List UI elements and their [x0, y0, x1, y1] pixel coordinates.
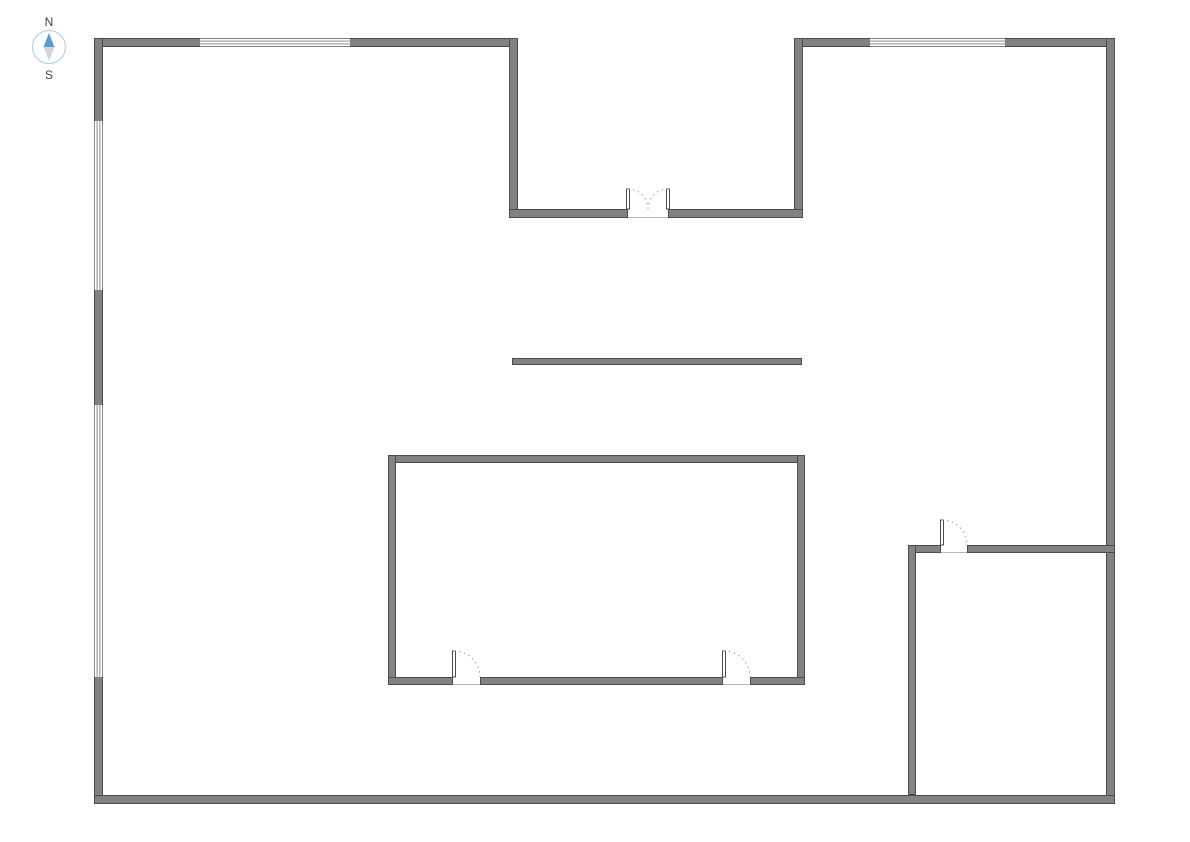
door-leaf [627, 189, 630, 209]
window-glass [870, 38, 1005, 47]
window-glass [94, 121, 103, 290]
wall-divider [513, 359, 802, 365]
entry-double-door-right-leaf [648, 189, 670, 209]
wall-outer-bottom [95, 796, 1115, 804]
door-swing-arc [628, 189, 648, 209]
wall-room-top [389, 456, 805, 463]
floor-plan-drawing: N S [0, 0, 1190, 842]
wall-br-room-left [909, 546, 916, 795]
door-leaf [667, 189, 670, 209]
door-leaf [453, 651, 456, 677]
door-swing-arc [648, 189, 668, 209]
doors-layer [453, 189, 968, 685]
center-room-door-east [723, 651, 751, 677]
door-leaf [941, 520, 944, 545]
compass-north-label: N [45, 15, 54, 29]
walls-layer [95, 39, 1115, 804]
wall-room-left [389, 456, 396, 685]
compass: N S [33, 15, 66, 82]
wall-notch-bottom-west [510, 210, 628, 218]
wall-room-bottom-east [751, 678, 805, 685]
wall-outer-right [1107, 39, 1115, 804]
br-room-door [941, 520, 968, 545]
floor-plan-canvas: N S [0, 0, 1190, 842]
wall-notch-bottom-east [669, 210, 803, 218]
window-glass [94, 405, 103, 677]
window-left-wall-window-upper [94, 121, 103, 290]
entry-double-door-left-leaf [627, 189, 649, 209]
window-left-wall-window-lower [94, 405, 103, 677]
wall-room-right [798, 456, 805, 685]
window-top-wall-window-west [200, 38, 350, 47]
compass-south-label: S [45, 68, 53, 82]
wall-br-room-top-east [968, 546, 1115, 553]
door-swing-arc [454, 651, 480, 677]
door-leaf [723, 651, 726, 677]
wall-room-bottom-mid [481, 678, 723, 685]
center-room-door-west [453, 651, 481, 677]
window-top-wall-window-east [870, 38, 1005, 47]
door-swing-arc [942, 520, 967, 545]
window-glass [200, 38, 350, 47]
windows-layer [94, 38, 1005, 677]
wall-room-bottom-west [389, 678, 453, 685]
wall-notch-left [510, 39, 518, 218]
door-swing-arc [724, 651, 750, 677]
wall-notch-right [795, 39, 803, 218]
